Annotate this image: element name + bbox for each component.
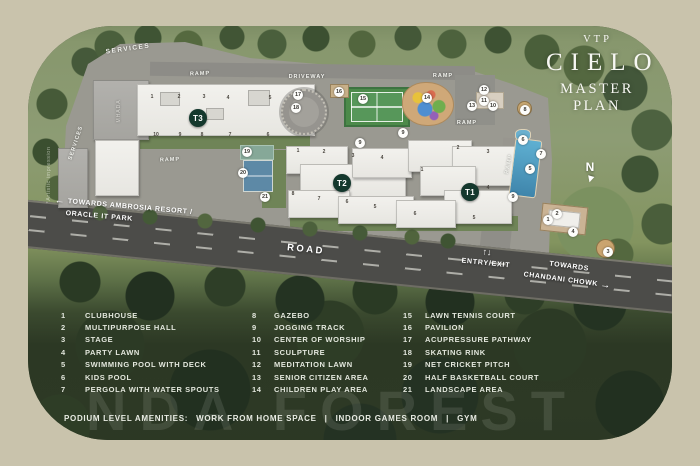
north-compass: N ▲ <box>585 160 596 185</box>
legend-column-2: 8GAZEBO 9JOGGING TRACK 10CENTER OF WORSH… <box>252 309 402 396</box>
footer-separator: | <box>446 414 449 423</box>
tower-badge-t1: T1 <box>461 183 479 201</box>
unit-number: 4 <box>227 95 230 101</box>
legend-item: 16PAVILION <box>403 321 573 333</box>
unit-number: 5 <box>374 204 377 210</box>
unit-number: 1 <box>151 94 154 100</box>
poster-canvas: SERVICES SERVICES MHADA RAMP DRIVEWAY RA… <box>28 26 672 440</box>
legend-item: 8GAZEBO <box>252 309 402 321</box>
half-basketball-court <box>243 160 273 192</box>
legend-item: 6KIDS POOL <box>61 371 246 383</box>
entry-exit-arrows: ↑↓ <box>482 247 492 258</box>
legend-item: 17ACUPRESSURE PATHWAY <box>403 334 573 346</box>
skating-rink <box>281 89 327 135</box>
legend-item: 5SWIMMING POOL WITH DECK <box>61 359 246 371</box>
unit-number: 5 <box>473 215 476 221</box>
unit-number: 4 <box>381 155 384 161</box>
amenity-marker-12: 12 <box>479 85 489 95</box>
footer-item: INDOOR GAMES ROOM <box>336 414 439 423</box>
building-west <box>95 140 139 196</box>
legend-item: 13SENIOR CITIZEN AREA <box>252 371 402 383</box>
amenity-marker-2: 2 <box>552 209 562 219</box>
mhada-label: MHADA <box>116 99 122 122</box>
ramp-label: RAMP <box>190 71 210 78</box>
amenity-marker-19: 19 <box>242 147 252 157</box>
unit-number: 8 <box>201 132 204 138</box>
children-play-area <box>402 82 454 126</box>
right-arrow-icon: → <box>600 279 612 291</box>
masterplan-poster: SERVICES SERVICES MHADA RAMP DRIVEWAY RA… <box>0 0 700 466</box>
unit-number: 10 <box>153 132 159 138</box>
plan-subtitle: MASTER PLAN <box>538 81 654 115</box>
legend-item: 12MEDITATION LAWN <box>252 359 402 371</box>
roof-detail <box>248 90 270 106</box>
amenity-marker-10: 10 <box>488 101 498 111</box>
footer-separator: | <box>325 414 328 423</box>
amenity-marker-15: 15 <box>358 94 368 104</box>
tower-badge-t2: T2 <box>333 174 351 192</box>
unit-number: 2 <box>323 149 326 155</box>
amenity-marker-20: 20 <box>238 168 248 178</box>
amenity-marker-9: 9 <box>508 192 518 202</box>
artistic-impression-note: *Artistic impression <box>46 147 52 204</box>
footer-item: WORK FROM HOME SPACE <box>196 414 317 423</box>
amenity-marker-18: 18 <box>291 103 301 113</box>
legend-item: 4PARTY LAWN <box>61 346 246 358</box>
amenity-marker-21: 21 <box>260 192 270 202</box>
legend-item: 2MULTIPURPOSE HALL <box>61 321 246 333</box>
legend-item: 1CLUBHOUSE <box>61 309 246 321</box>
ramp-label: RAMP <box>160 156 180 163</box>
project-title: VTP CIELO MASTER PLAN <box>538 34 654 115</box>
amenity-marker-7: 7 <box>536 149 546 159</box>
brand-name: VTP <box>538 34 654 45</box>
building-t1-wing <box>396 200 456 228</box>
legend-item: 18SKATING RINK <box>403 346 573 358</box>
podium-amenities-bar: PODIUM LEVEL AMENITIES: WORK FROM HOME S… <box>64 414 477 423</box>
legend-item: 7PERGOLA WITH WATER SPOUTS <box>61 383 246 395</box>
amenity-marker-17: 17 <box>293 90 303 100</box>
amenity-marker-9: 9 <box>398 128 408 138</box>
ramp-label: RAMP <box>457 120 477 126</box>
footer-item: GYM <box>457 414 477 423</box>
amenity-marker-4: 4 <box>568 227 578 237</box>
building-t2-wing <box>352 148 412 178</box>
amenity-marker-14: 14 <box>422 93 432 103</box>
unit-number: 3 <box>203 94 206 100</box>
amenity-marker-5: 5 <box>525 164 535 174</box>
legend-item: 15LAWN TENNIS COURT <box>403 309 573 321</box>
amenity-marker-13: 13 <box>467 101 477 111</box>
project-name: CIELO <box>538 49 654 77</box>
unit-number: 9 <box>179 132 182 138</box>
unit-number: 3 <box>352 153 355 159</box>
legend-item: 3STAGE <box>61 334 246 346</box>
unit-number: 7 <box>318 196 321 202</box>
amenity-marker-16: 16 <box>334 87 344 97</box>
legend-column-3: 15LAWN TENNIS COURT 16PAVILION 17ACUPRES… <box>403 309 573 396</box>
amenity-marker-9: 9 <box>355 138 365 148</box>
driveway-label: DRIVEWAY <box>289 74 326 80</box>
unit-number: 6 <box>267 132 270 138</box>
unit-number: 7 <box>229 132 232 138</box>
unit-number: 3 <box>487 149 490 155</box>
legend-item: 11SCULPTURE <box>252 346 402 358</box>
tower-badge-t3: T3 <box>189 109 207 127</box>
amenity-marker-8: 8 <box>520 105 530 115</box>
unit-number: 6 <box>346 199 349 205</box>
legend-item: 9JOGGING TRACK <box>252 321 402 333</box>
legend-item: 10CENTER OF WORSHIP <box>252 334 402 346</box>
compass-needle-icon: ▲ <box>584 172 598 187</box>
amenity-marker-1: 1 <box>543 215 553 225</box>
unit-number: 2 <box>457 145 460 151</box>
unit-number: 8 <box>292 191 295 197</box>
roof-detail <box>206 108 224 120</box>
unit-number: 2 <box>178 94 181 100</box>
legend-item: 14CHILDREN PLAY AREA <box>252 383 402 395</box>
unit-number: 4 <box>487 185 490 191</box>
unit-number: 5 <box>269 95 272 101</box>
unit-number: 6 <box>414 211 417 217</box>
lawn-tennis-court <box>344 87 410 127</box>
unit-number: 1 <box>421 167 424 173</box>
left-arrow-icon: ← <box>54 195 66 207</box>
legend-item: 20HALF BASKETBALL COURT <box>403 371 573 383</box>
footer-prefix: PODIUM LEVEL AMENITIES: <box>64 414 188 423</box>
ramp-label: RAMP <box>433 73 453 79</box>
legend-item: 21LANDSCAPE AREA <box>403 383 573 395</box>
legend-item: 19NET CRICKET PITCH <box>403 359 573 371</box>
legend-column-1: 1CLUBHOUSE 2MULTIPURPOSE HALL 3STAGE 4PA… <box>61 309 246 396</box>
amenity-marker-3: 3 <box>603 247 613 257</box>
amenity-marker-6: 6 <box>518 135 528 145</box>
unit-number: 1 <box>297 148 300 154</box>
lawn-strip <box>140 136 310 149</box>
